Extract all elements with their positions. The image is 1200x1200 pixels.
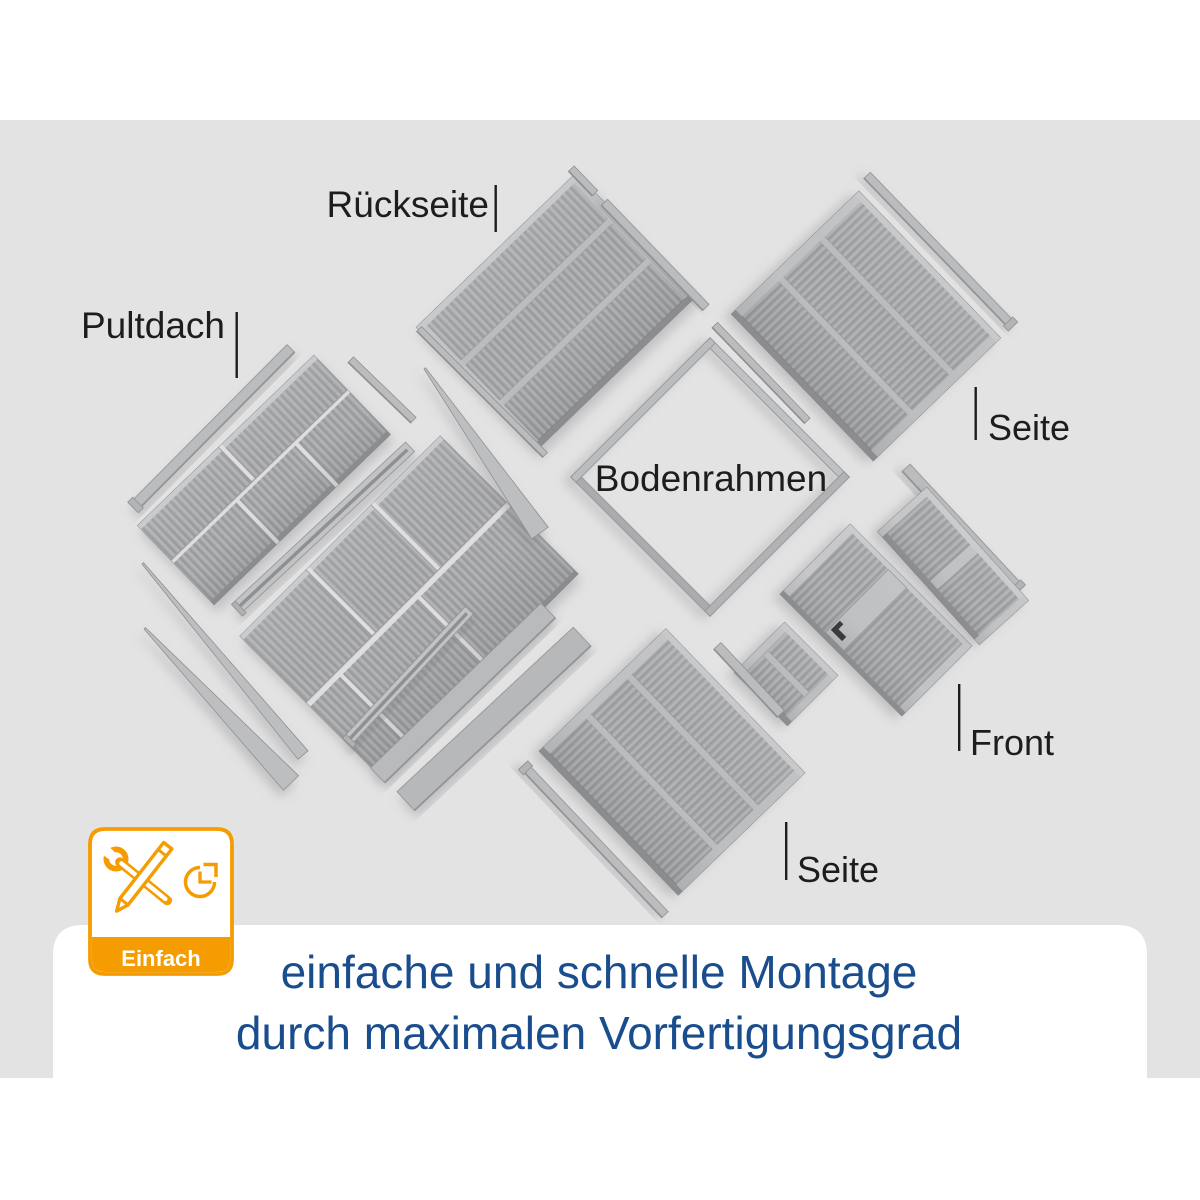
- svg-text:Front: Front: [970, 722, 1054, 763]
- svg-text:Pultdach: Pultdach: [81, 305, 225, 346]
- svg-text:Seite: Seite: [988, 407, 1070, 448]
- svg-text:einfache und schnelle Montage: einfache und schnelle Montage: [281, 946, 918, 998]
- svg-text:Rückseite: Rückseite: [327, 184, 489, 225]
- svg-text:Seite: Seite: [797, 849, 879, 890]
- svg-text:Einfach: Einfach: [121, 946, 200, 971]
- svg-text:durch maximalen Vorfertigungsg: durch maximalen Vorfertigungsgrad: [236, 1007, 962, 1059]
- svg-text:Bodenrahmen: Bodenrahmen: [595, 458, 827, 499]
